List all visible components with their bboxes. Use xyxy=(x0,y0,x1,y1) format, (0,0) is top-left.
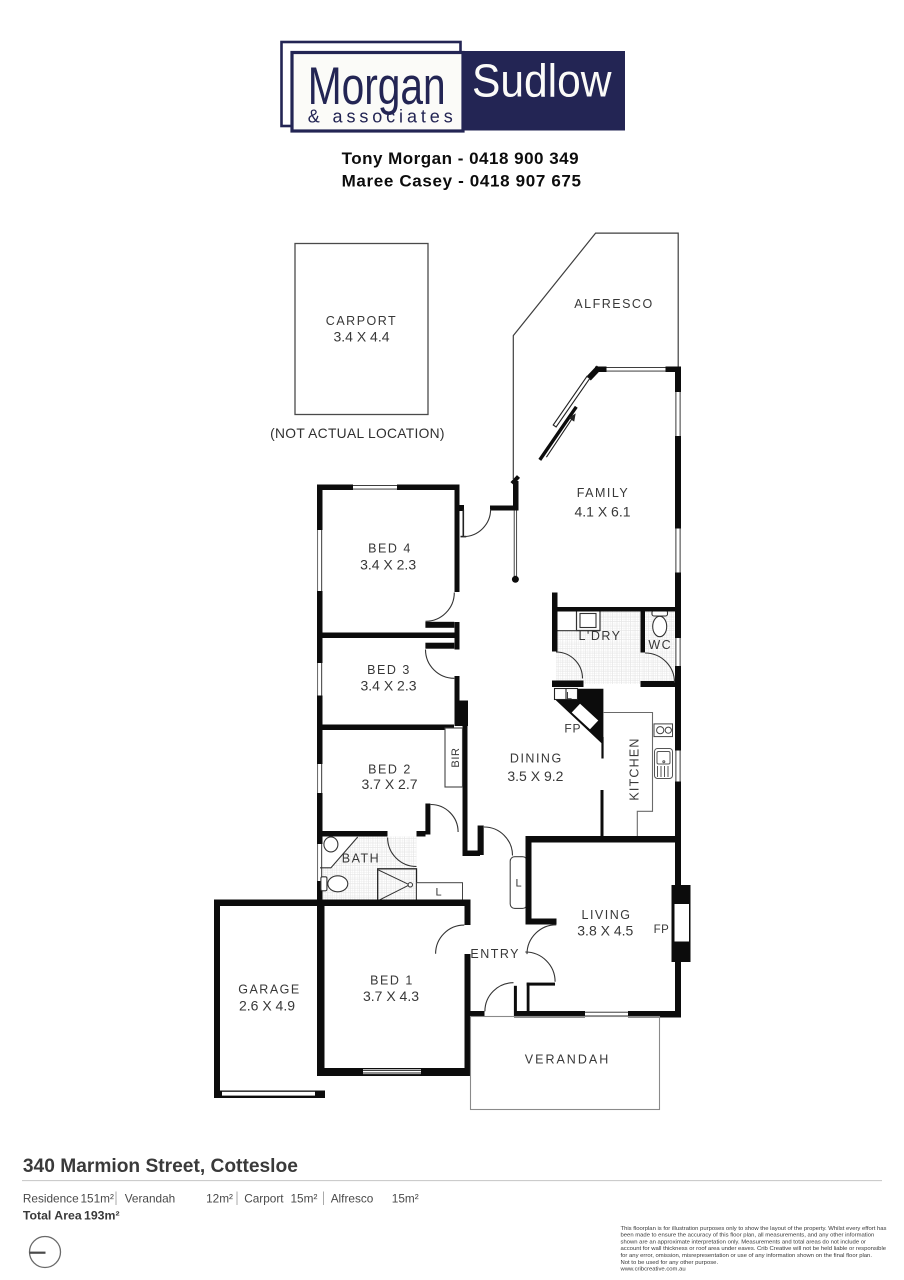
svg-text:LIVING: LIVING xyxy=(582,908,632,922)
svg-text:BATH: BATH xyxy=(342,852,380,866)
svg-text:GARAGE: GARAGE xyxy=(238,983,301,997)
svg-text:3.7 X 4.3: 3.7 X 4.3 xyxy=(363,988,419,1004)
svg-text:15m²: 15m² xyxy=(392,1192,419,1206)
svg-text:2.6 X 4.9: 2.6 X 4.9 xyxy=(239,998,295,1014)
svg-text:4.1 X 6.1: 4.1 X 6.1 xyxy=(574,504,630,520)
svg-text:L: L xyxy=(516,878,522,890)
svg-text:Maree Casey - 0418 907 675: Maree Casey - 0418 907 675 xyxy=(342,172,581,191)
svg-text:L'DRY: L'DRY xyxy=(578,629,621,643)
svg-text:WC: WC xyxy=(648,638,672,652)
svg-text:L: L xyxy=(566,690,572,702)
svg-text:Total Area: Total Area xyxy=(23,1209,82,1223)
svg-text:BIR: BIR xyxy=(450,747,462,767)
svg-text:KITCHEN: KITCHEN xyxy=(628,737,642,800)
svg-text:L: L xyxy=(435,886,441,898)
svg-text:been made to ensure the accura: been made to ensure the accuracy of this… xyxy=(621,1233,875,1239)
svg-text:3.4 X 4.4: 3.4 X 4.4 xyxy=(333,329,389,345)
svg-text:151m²: 151m² xyxy=(81,1192,115,1206)
svg-text:Not to be used for any other p: Not to be used for any other purpose. xyxy=(621,1260,719,1266)
svg-text:BED 2: BED 2 xyxy=(368,763,412,777)
svg-text:BED 4: BED 4 xyxy=(368,542,412,556)
svg-text:This floorplan is for illustra: This floorplan is for illustration purpo… xyxy=(621,1226,887,1232)
svg-text:www.cribcreative.com.au: www.cribcreative.com.au xyxy=(620,1267,686,1273)
svg-text:Alfresco: Alfresco xyxy=(331,1192,374,1206)
svg-text:3.4 X 2.3: 3.4 X 2.3 xyxy=(360,556,416,572)
svg-text:for any error, omission, misre: for any error, omission, misrepresentati… xyxy=(621,1253,873,1259)
svg-text:ALFRESCO: ALFRESCO xyxy=(574,297,653,311)
svg-text:340 Marmion Street, Cottesloe: 340 Marmion Street, Cottesloe xyxy=(23,1155,298,1177)
svg-text:shown are an approximate inter: shown are an approximate interpretation … xyxy=(621,1239,867,1245)
svg-text:Verandah: Verandah xyxy=(125,1192,176,1206)
svg-text:3.8 X 4.5: 3.8 X 4.5 xyxy=(577,923,633,939)
svg-text:FAMILY: FAMILY xyxy=(577,486,630,500)
svg-text:ENTRY: ENTRY xyxy=(470,947,520,961)
svg-text:193m²: 193m² xyxy=(84,1209,120,1223)
svg-text:Tony Morgan - 0418 900 349: Tony Morgan - 0418 900 349 xyxy=(342,149,579,168)
svg-text:Sudlow: Sudlow xyxy=(472,55,612,107)
svg-text:FP: FP xyxy=(654,924,670,936)
svg-text:FP: FP xyxy=(564,722,581,736)
svg-text:VERANDAH: VERANDAH xyxy=(525,1053,610,1067)
svg-text:(NOT ACTUAL LOCATION): (NOT ACTUAL LOCATION) xyxy=(270,426,445,441)
svg-text:account for wall thickness or: account for wall thickness or roof area … xyxy=(621,1246,887,1252)
svg-text:BED 3: BED 3 xyxy=(367,663,411,677)
svg-text:Residence: Residence xyxy=(23,1192,79,1206)
svg-text:Carport: Carport xyxy=(244,1192,284,1206)
svg-text:3.7 X 2.7: 3.7 X 2.7 xyxy=(361,776,417,792)
svg-text:15m²: 15m² xyxy=(291,1192,318,1206)
svg-text:3.4 X 2.3: 3.4 X 2.3 xyxy=(360,677,416,693)
svg-text:DINING: DINING xyxy=(510,752,563,766)
svg-text:3.5 X 9.2: 3.5 X 9.2 xyxy=(507,768,563,784)
svg-text:BED 1: BED 1 xyxy=(370,974,414,988)
svg-text:CARPORT: CARPORT xyxy=(326,314,397,328)
svg-text:12m²: 12m² xyxy=(206,1192,233,1206)
